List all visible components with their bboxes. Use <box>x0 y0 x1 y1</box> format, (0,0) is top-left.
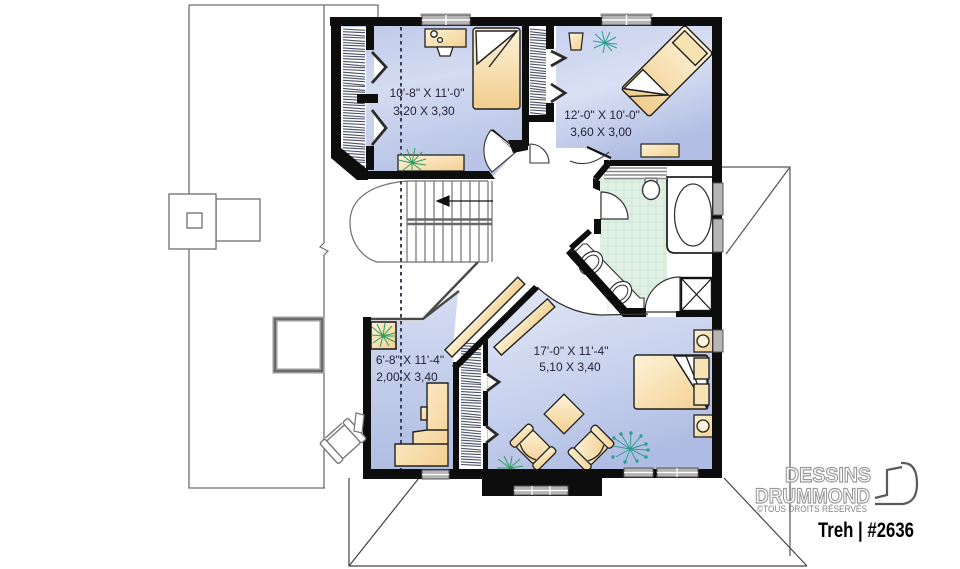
svg-text:12'-0" X 10'-0": 12'-0" X 10'-0" <box>564 108 640 122</box>
svg-text:3,60 X 3,00: 3,60 X 3,00 <box>570 125 632 139</box>
svg-text:DESSINS: DESSINS <box>785 464 871 487</box>
svg-text:2,00 X 3,40: 2,00 X 3,40 <box>376 370 438 384</box>
svg-text:3,20 X 3,30: 3,20 X 3,30 <box>393 104 455 118</box>
svg-text:Treh | #2636: Treh | #2636 <box>818 519 914 542</box>
svg-text:17'-0" X 11'-4": 17'-0" X 11'-4" <box>534 344 609 358</box>
svg-text:10'-8" X 11'-0": 10'-8" X 11'-0" <box>390 86 465 100</box>
svg-text:5,10 X 3,40: 5,10 X 3,40 <box>539 360 601 374</box>
svg-text:©TOUS DROITS RÉSERVÉS: ©TOUS DROITS RÉSERVÉS <box>757 504 867 515</box>
svg-text:6'-8" X 11'-4": 6'-8" X 11'-4" <box>376 353 444 367</box>
